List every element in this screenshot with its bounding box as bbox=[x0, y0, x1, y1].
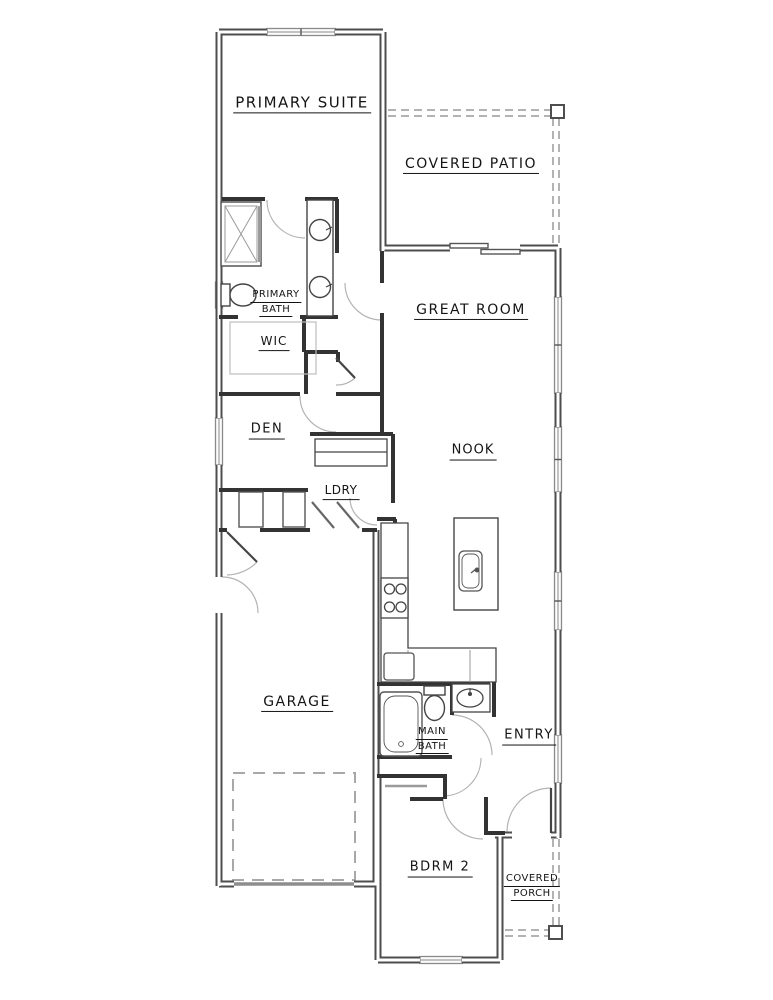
toilet-icon bbox=[424, 686, 445, 721]
garage-door-overhead-dashed bbox=[233, 773, 355, 880]
bath-sink-icon bbox=[452, 684, 490, 712]
floor-plan: PRIMARY SUITECOVERED PATIOPRIMARYBATHWIC… bbox=[0, 0, 773, 1000]
door-swing-arc bbox=[452, 715, 492, 755]
door-swing-arc bbox=[227, 562, 257, 575]
shower-icon bbox=[221, 202, 261, 266]
door-swing-arc bbox=[443, 758, 481, 796]
dryer-icon bbox=[283, 492, 305, 527]
range-stove-icon bbox=[381, 578, 408, 618]
exterior-walls bbox=[219, 32, 558, 960]
door-swing-arc bbox=[336, 378, 355, 385]
sliding-glass-door-icon bbox=[450, 244, 520, 255]
door-swing-arc bbox=[222, 577, 258, 613]
door-swing-arc bbox=[443, 799, 483, 839]
island-sink-icon bbox=[459, 551, 482, 591]
door-swing-arc bbox=[507, 788, 551, 832]
floor-plan-drawing bbox=[0, 0, 773, 1000]
door-leaf bbox=[336, 358, 355, 378]
door-swing-arc bbox=[267, 200, 305, 238]
door-swing-arc bbox=[345, 283, 382, 320]
bifold-doors-icon bbox=[312, 502, 359, 528]
double-vanity-sink-icon bbox=[307, 200, 333, 316]
washer-icon bbox=[239, 492, 263, 527]
patio-post-icon bbox=[551, 105, 564, 118]
windows bbox=[216, 29, 562, 964]
door-leaf bbox=[227, 532, 257, 562]
door-swing-arc bbox=[300, 396, 336, 432]
refrigerator-icon bbox=[384, 653, 414, 680]
laundry-cabinet-icon bbox=[315, 439, 387, 466]
bathtub-icon bbox=[380, 692, 422, 756]
porch-post-icon bbox=[549, 926, 562, 939]
toilet-icon bbox=[221, 284, 256, 306]
